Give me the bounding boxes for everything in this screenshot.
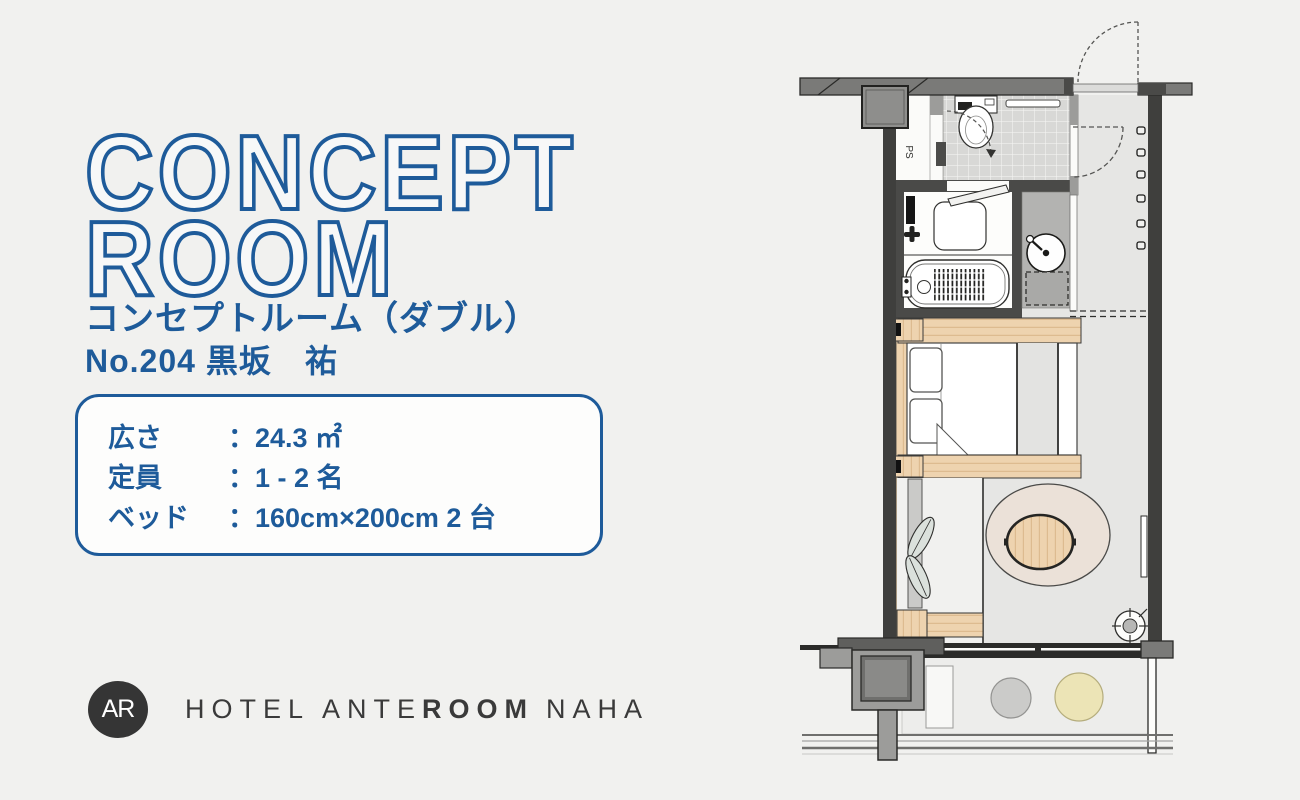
bed-runner: [1017, 343, 1058, 455]
cabinet: [897, 610, 927, 637]
right-wall: [1148, 95, 1162, 645]
page: CONCEPT ROOM コンセプトルーム（ダブル） No.204 黒坂 祐 広…: [0, 0, 1300, 800]
spec-row-size: 広さ：24.3 ㎡: [108, 418, 600, 458]
shower-panel: [906, 196, 915, 224]
logo-monogram: AR: [102, 695, 135, 724]
shower-tray: [934, 202, 986, 250]
entry-threshold: [1073, 84, 1138, 92]
hotel-logo-mark-icon: AR: [88, 681, 148, 738]
room-type-subtitle: コンセプトルーム（ダブル）: [85, 291, 539, 340]
washbasin-area: [1022, 192, 1077, 311]
room-number: No.204 黒坂 祐: [85, 336, 338, 382]
spec-colon: ：: [228, 418, 255, 458]
balcony-stool-yellow: [1055, 673, 1103, 721]
bathtub-drain: [918, 281, 931, 294]
spec-label: ベッド: [108, 498, 228, 538]
toilet-wall-fixture: [936, 142, 946, 166]
hotel-name: HOTEL ANTEROOMNAHA: [185, 694, 649, 725]
laundry-space: [1026, 272, 1068, 305]
balcony-side-wall: [1148, 658, 1156, 753]
pipe-space-label: PS: [903, 145, 914, 159]
balcony-stool-gray: [991, 678, 1031, 718]
spec-box: 広さ：24.3 ㎡ 定員：1 - 2 名 ベッド：160cm×200cm 2 台: [75, 394, 603, 556]
hotel-name-part1: HOTEL ANTE: [185, 694, 422, 724]
hotel-name-part3: NAHA: [546, 694, 649, 724]
wall-panel: [1141, 516, 1147, 577]
hotel-name-part2: ROOM: [422, 694, 534, 724]
bathroom: [902, 185, 1012, 308]
hotel-logo: AR HOTEL ANTEROOMNAHA: [88, 681, 649, 738]
cabinet: [927, 613, 983, 637]
bed-footboard: [898, 455, 1081, 478]
bathtub: [902, 260, 1009, 308]
page-title: CONCEPT ROOM: [85, 130, 577, 302]
entry-door-swing: [1078, 22, 1138, 83]
pillow: [910, 348, 942, 392]
desk-area: [897, 478, 983, 648]
bathtub-mat: [934, 269, 986, 301]
towel-bar: [1006, 100, 1060, 107]
spec-row-bed: ベッド：160cm×200cm 2 台: [108, 498, 600, 538]
bed-headboard: [898, 318, 1081, 343]
spec-value: 1 - 2 名: [255, 458, 344, 498]
spec-label: 広さ: [108, 418, 228, 458]
top-left-column: [862, 86, 908, 128]
floor-plan: PS: [780, 0, 1210, 800]
balcony-railing: [802, 735, 1173, 754]
spec-value: 160cm×200cm 2 台: [255, 498, 496, 538]
spec-label: 定員: [108, 458, 228, 498]
spec-colon: ：: [228, 458, 255, 498]
round-table-and-rug: [986, 484, 1110, 586]
spec-value: 24.3 ㎡: [255, 418, 342, 458]
spec-row-capacity: 定員：1 - 2 名: [108, 458, 600, 498]
left-wall: [883, 95, 896, 645]
spec-colon: ：: [228, 498, 255, 538]
top-exterior-wall: [800, 78, 1192, 95]
balcony-bench: [926, 666, 953, 728]
